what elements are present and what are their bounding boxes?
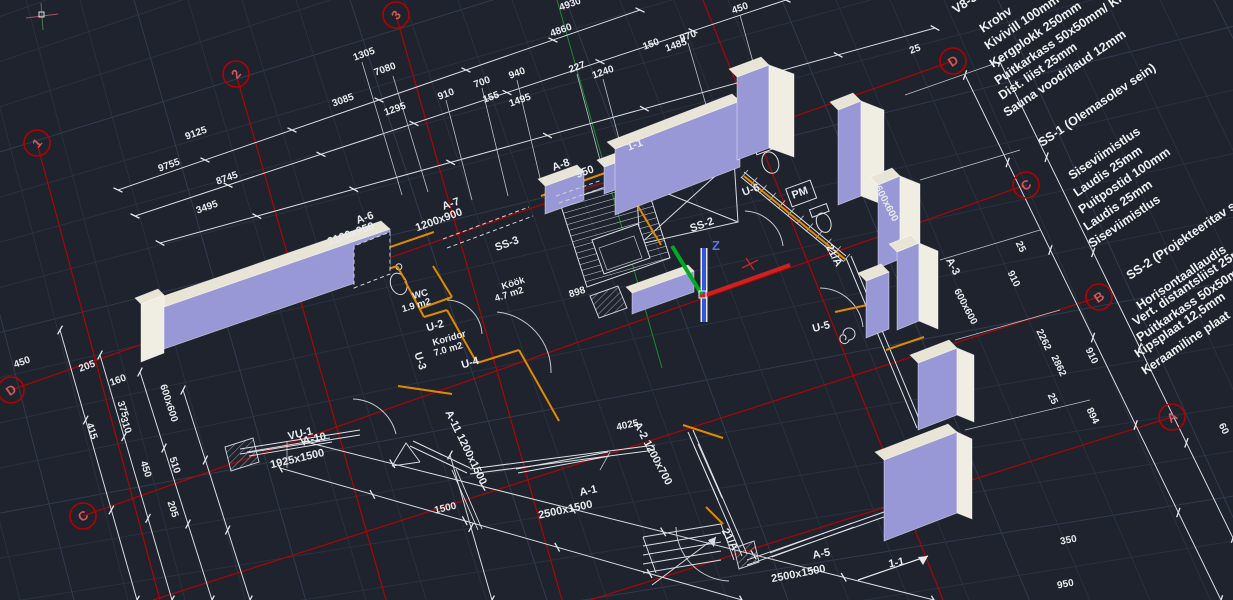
ucs-z-label: Z [712,238,720,253]
drawing-canvas[interactable]: Z 123DCBADC 9125975587453495130570803085… [0,0,1233,600]
cad-viewport[interactable]: Z 123DCBADC 9125975587453495130570803085… [0,0,1233,600]
